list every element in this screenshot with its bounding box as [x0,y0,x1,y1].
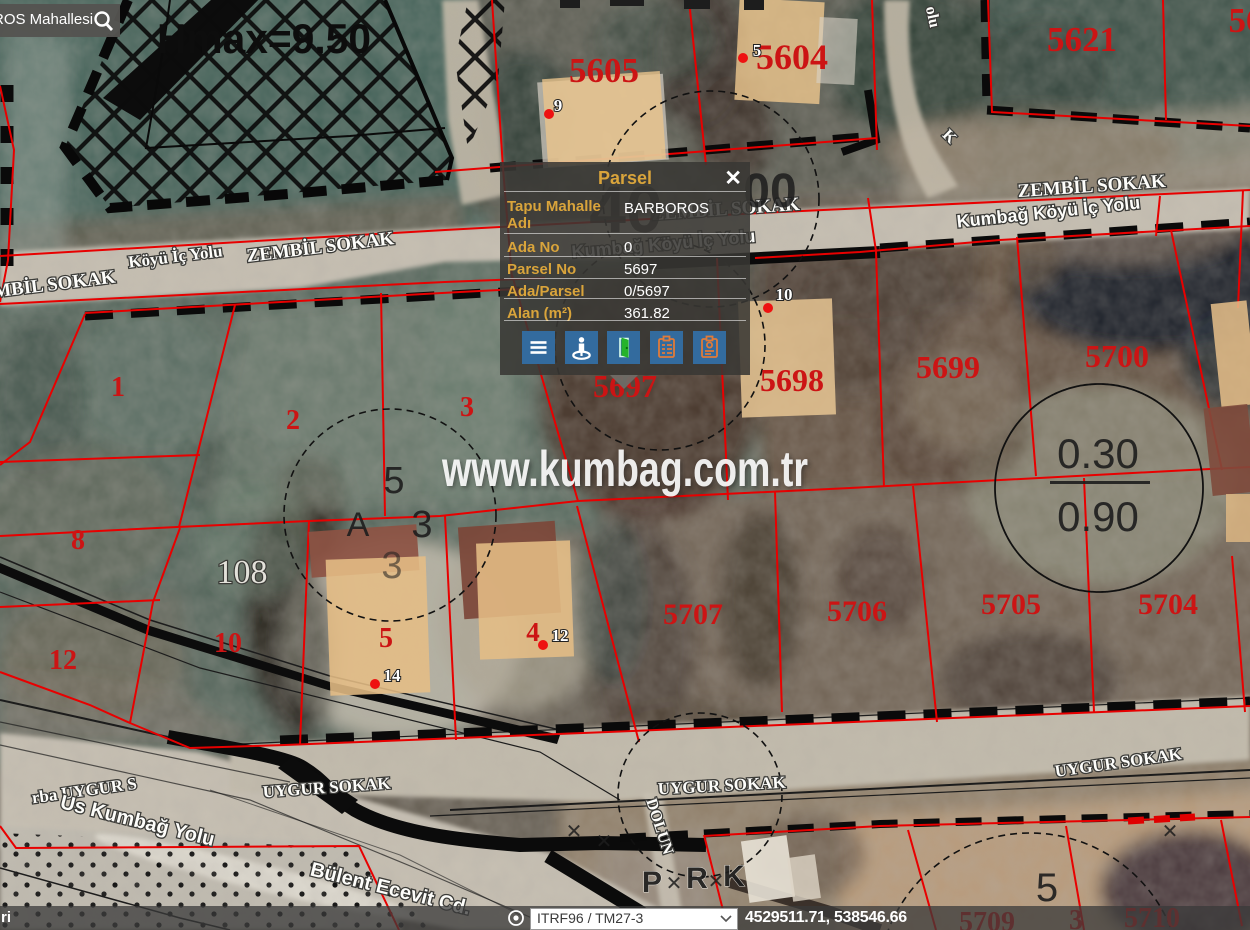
svg-text:00: 00 [743,165,796,218]
svg-text:5: 5 [1036,866,1058,910]
svg-text:5: 5 [753,41,762,60]
svg-text:5: 5 [379,623,393,654]
svg-text:www.kumbag.com.tr: www.kumbag.com.tr [441,441,808,497]
svg-text:Hmax=9.50: Hmax=9.50 [157,15,371,62]
svg-text:1: 1 [111,372,125,403]
svg-text:10: 10 [214,628,242,659]
svg-text:K: K [723,860,745,893]
svg-text:P: P [642,866,662,899]
svg-text:0.90: 0.90 [1057,493,1139,540]
svg-text:✕: ✕ [596,831,613,853]
svg-text:5700: 5700 [1085,338,1149,374]
svg-text:✕: ✕ [666,873,683,895]
svg-text:4: 4 [526,617,540,647]
svg-text:5604: 5604 [756,37,828,77]
svg-text:5704: 5704 [1138,588,1198,621]
svg-text:108: 108 [217,554,268,591]
svg-text:5605: 5605 [569,51,639,90]
svg-text:✕: ✕ [708,871,725,893]
svg-text:3: 3 [381,545,402,587]
svg-text:✕: ✕ [566,821,583,843]
svg-text:5: 5 [383,460,404,502]
svg-text:3: 3 [411,504,432,546]
svg-text:A: A [347,506,370,544]
svg-text:2: 2 [286,405,300,436]
svg-text:3: 3 [460,392,474,423]
svg-text:5699: 5699 [916,349,980,385]
svg-text:0.30: 0.30 [1057,430,1139,477]
svg-text:5698: 5698 [760,362,824,398]
svg-text:8: 8 [71,525,85,556]
svg-text:12: 12 [552,626,569,645]
svg-text:5705: 5705 [981,588,1041,621]
svg-text:56: 56 [1229,1,1250,40]
svg-text:9: 9 [554,96,563,115]
svg-text:R: R [686,862,708,895]
svg-text:10: 10 [776,285,793,304]
svg-text:✕: ✕ [1162,821,1179,843]
svg-text:5707: 5707 [663,598,723,631]
svg-text:5706: 5706 [827,595,887,628]
svg-text:14: 14 [384,666,402,685]
svg-text:12: 12 [49,645,77,676]
svg-text:5621: 5621 [1047,20,1117,59]
